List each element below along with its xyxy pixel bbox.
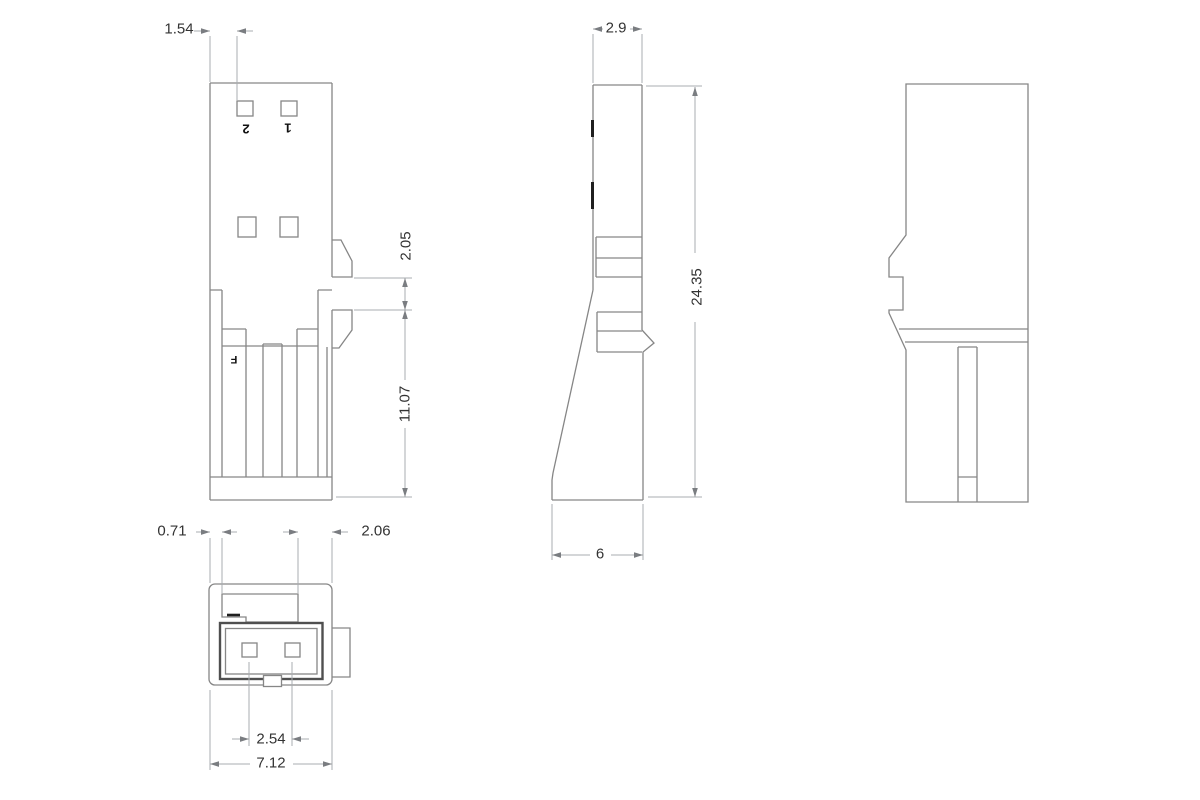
front-contact-label-f: F bbox=[230, 353, 237, 365]
dim-pin-pitch-value: 2.54 bbox=[256, 731, 285, 748]
dim-pin-offset-value: 1.54 bbox=[164, 21, 193, 38]
dim-wall-width-value: 2.9 bbox=[606, 20, 627, 37]
dim-latch-width-value: 2.06 bbox=[361, 523, 390, 540]
dim-lower-body-value: 11.07 bbox=[397, 386, 414, 422]
dim-overall-height-value: 24.35 bbox=[689, 268, 706, 306]
canvas bbox=[0, 0, 1200, 800]
front-pin-label-2: 2 bbox=[242, 122, 249, 137]
technical-drawing-page: 2 1 F 1.54 2.05 11.07 bbox=[0, 0, 1200, 800]
dim-base-depth-value: 6 bbox=[596, 546, 604, 563]
bottom-polarity-tab bbox=[264, 676, 282, 687]
front-pin-label-1: 1 bbox=[284, 121, 291, 136]
dim-latch-window-value: 2.05 bbox=[398, 231, 415, 260]
dim-overall-width-value: 7.12 bbox=[256, 755, 285, 772]
connector-drawing: 2 1 F 1.54 2.05 11.07 bbox=[0, 0, 1200, 800]
dim-wall-thickness-value: 0.71 bbox=[157, 523, 186, 540]
